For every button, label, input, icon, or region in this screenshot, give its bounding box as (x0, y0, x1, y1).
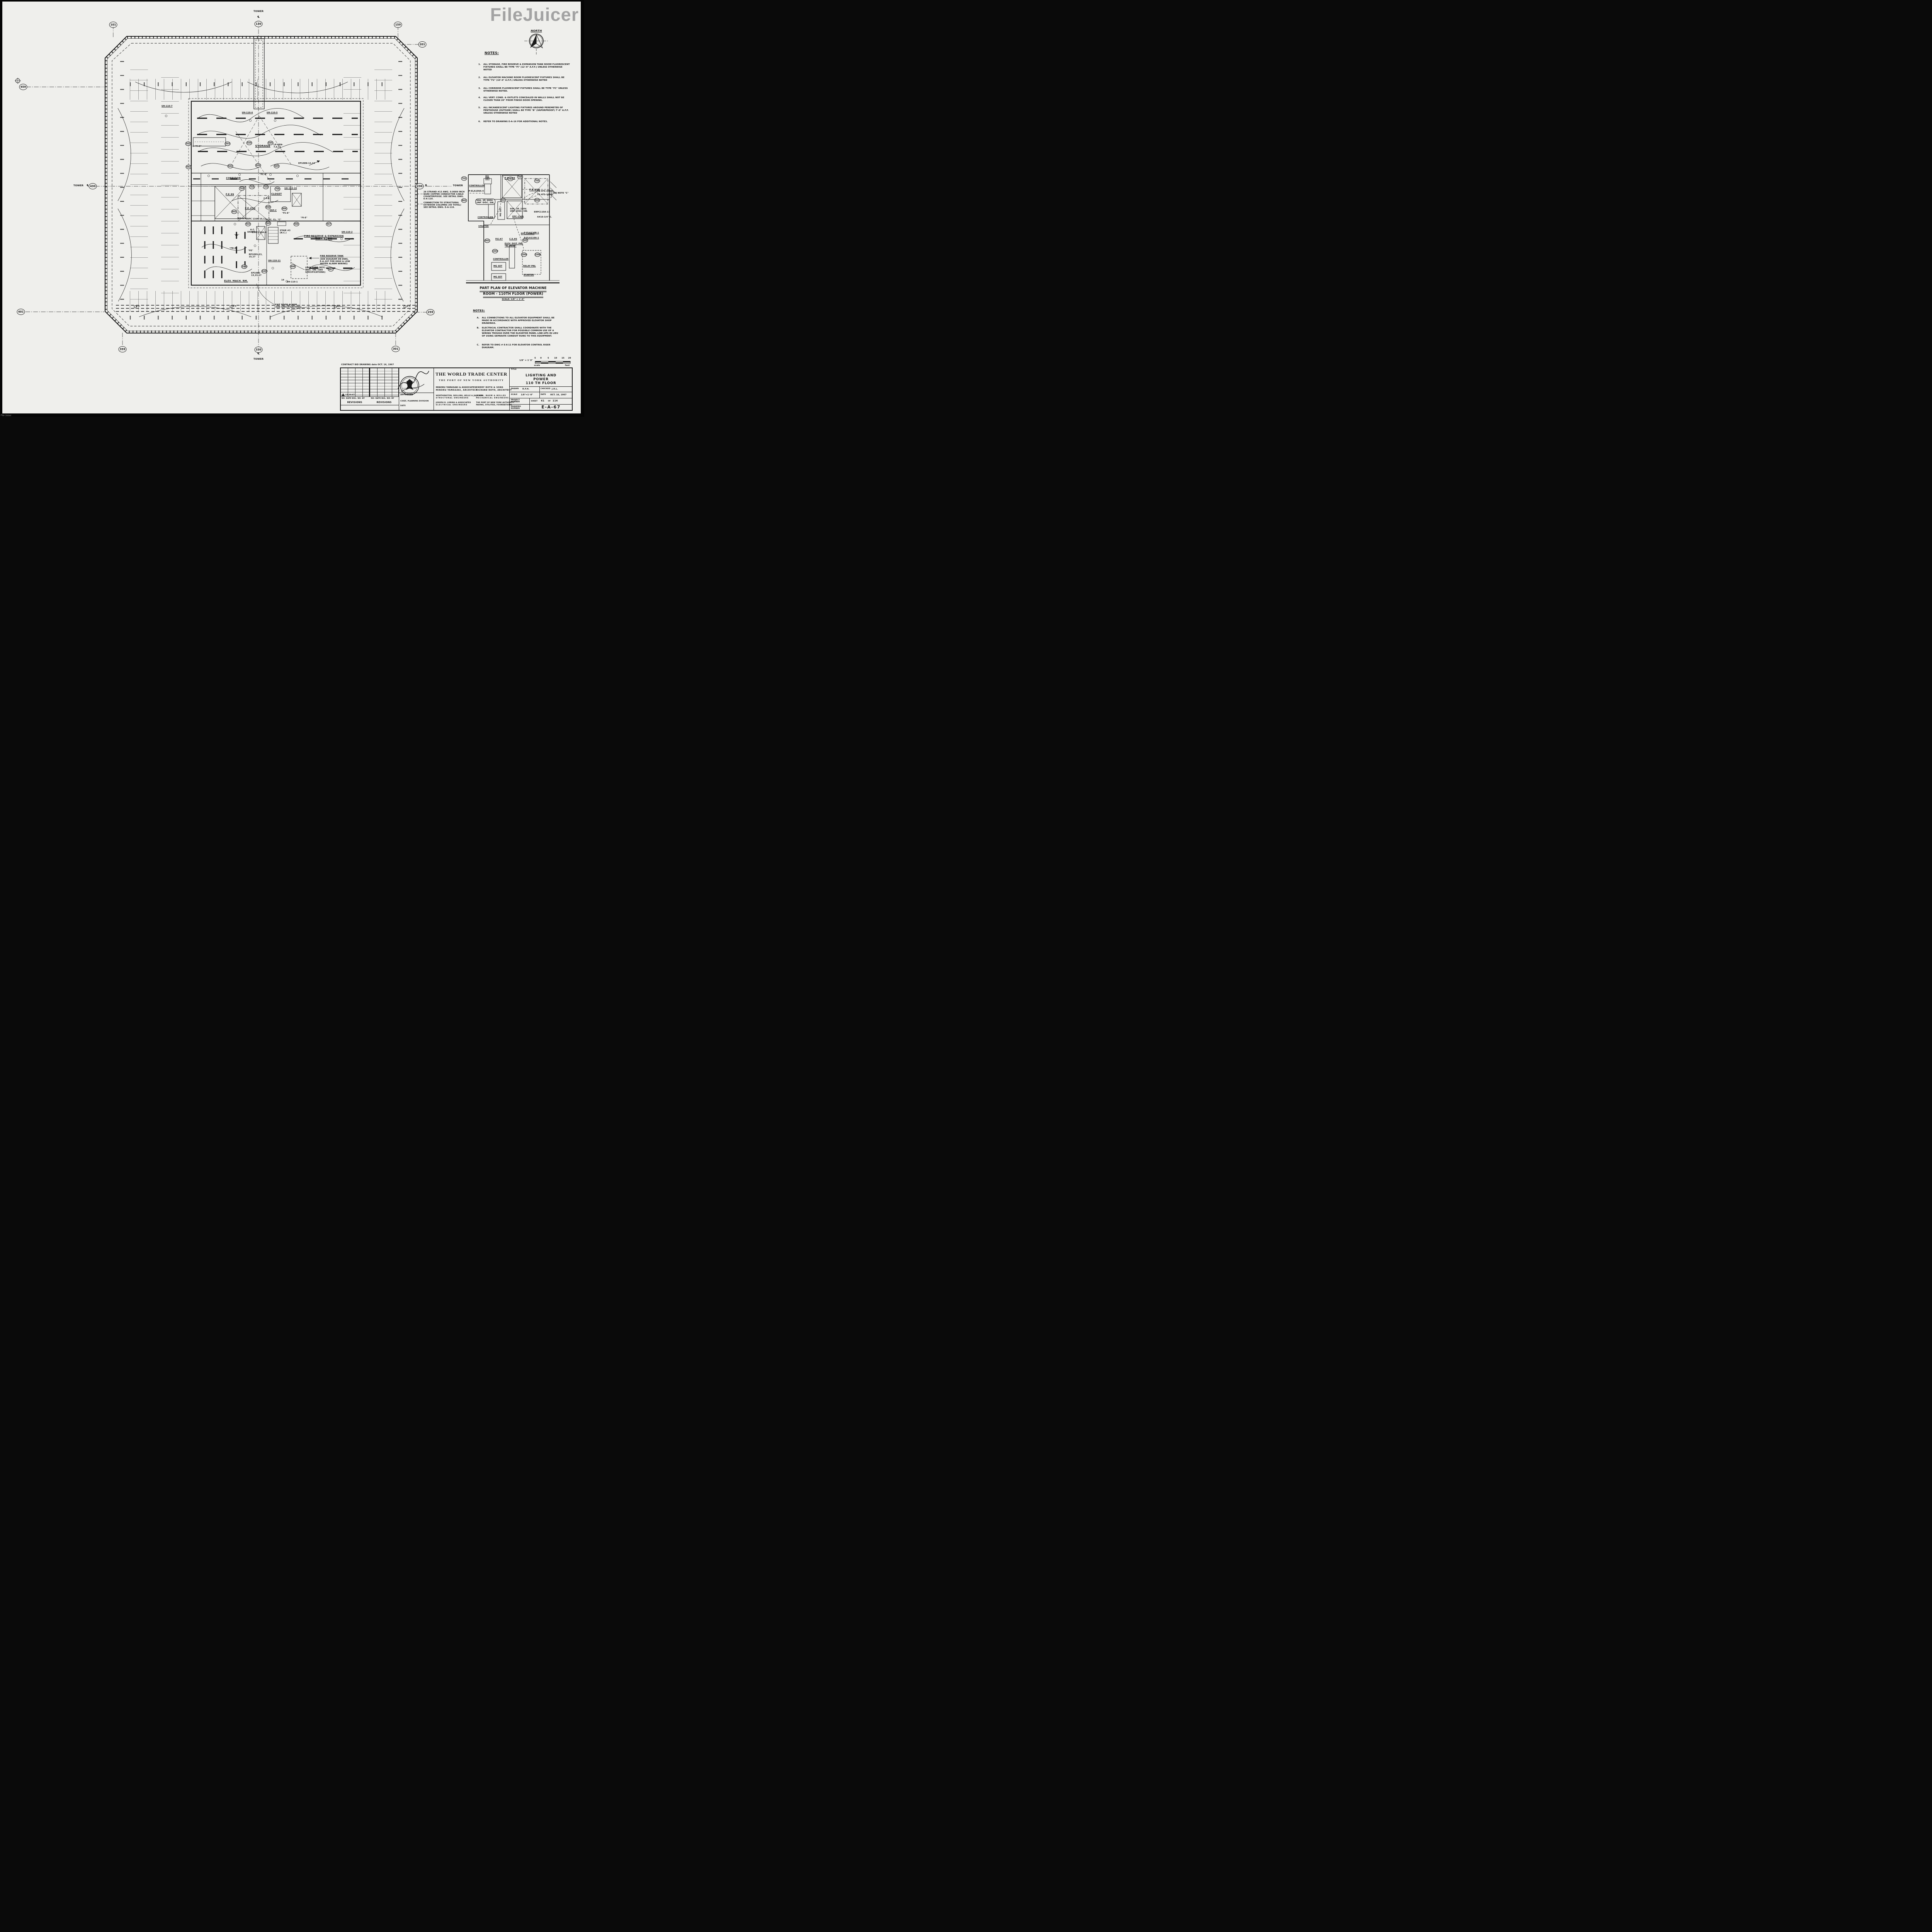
title-label: TITLE (511, 369, 517, 371)
column-bubble-301: 301 (392, 346, 400, 352)
column-bubble-259: 259 (427, 309, 435, 315)
note-item-4: 4. ALL VERT. COND. & OUTLETS CONCEALED I… (478, 97, 570, 102)
tag-ep108s: EP108S- 13,15,17 (251, 272, 262, 277)
ref-bubble-803: 803 (231, 210, 237, 214)
note-item-6: 6. REFER TO DRAWING E-A-16 FOR ADDITIONA… (478, 121, 570, 123)
note-text: ALL CONNECTIONS TO ALL ELEVATOR EQUIPMEN… (482, 317, 562, 325)
firm-loring: JOSEPH R. LORING & ASSOCIATES (436, 402, 471, 404)
room-label-fe50: F.E.#50 (245, 207, 255, 210)
tag-uh-110-5: UH-110-5 (267, 112, 278, 114)
revision-bottom-rule (340, 405, 399, 405)
contract-bid-note: CONTRACT BID DRAWING date OCT. 16, 1967 (341, 364, 394, 366)
revision-mark-date: 12·18·67 (345, 394, 355, 396)
pp-see-note-c: SEE NOTE "C" (553, 192, 568, 194)
firm-roth-role: RICHARD ROTH, ARCHITECT (476, 389, 512, 391)
pp-p-ela110b-1: P-ELA110B-1 (524, 232, 539, 234)
plan-linework (0, 0, 584, 417)
tag-uh-110-2: UH-110-2 (342, 231, 353, 233)
room-label-fire-reserve-tank-room: FIRE RESERVE & EXPANSION TANK ROOM (304, 235, 344, 240)
firm-yamasaki-role: MINORU YAMASAKI, ARCHITECT (436, 389, 478, 391)
tag-erp-c: ERP-C (270, 209, 277, 212)
scalebar-tick-5: 5 (548, 357, 549, 359)
pp-bubble-703: 703 (508, 177, 514, 181)
drawn-value: R.F.H. (522, 388, 529, 390)
revisions-label-right: REVISIONS (376, 401, 391, 404)
room-label-storage: STORAGE (255, 145, 270, 148)
tb-row-rule-2 (509, 392, 573, 392)
pp-pe7: P.E.#7 (495, 238, 503, 240)
note-text: REFER TO DRAWING E-A-16 FOR ADDITIONAL N… (483, 121, 548, 123)
note-number: 5. (478, 107, 482, 115)
pp-starter: STARTER (478, 225, 489, 228)
note-text: ALL INCANDESCENT LIGHTING FIXTURES AROUN… (483, 107, 570, 115)
ref-bubble-1003: 1003 (241, 265, 247, 269)
revisions-label-left: REVISIONS (347, 401, 362, 404)
north-arrow-icon (524, 34, 549, 56)
callout-lock-type-disc-sw: LOCK TYPE (KEY) DISC. SW. (SEE SPECIFICA… (305, 267, 325, 274)
scale-bar (535, 361, 570, 364)
note-number: 2. (478, 77, 482, 82)
pp-note-b: B. ELECTRICAL CONTRACTOR SHALL COORDINAT… (477, 327, 562, 338)
part-plan-title-line1: PART PLAN OF ELEVATOR MACHINE (480, 287, 546, 292)
column-bubble-201: 201 (418, 41, 427, 48)
pp-bubble-802: 802 (461, 199, 467, 203)
ref-bubble-504: 504 (247, 141, 252, 145)
note-text: REFER TO DWG # E-X-11 FOR ELEVATOR CONTR… (482, 344, 562, 349)
note-text: ELECTRICAL CONTRACTOR SHALL COORDINATE W… (482, 327, 562, 338)
scanned-blueprint-page: FileJuicer File Juicer 101 TOWER ℄ 130 1… (0, 0, 584, 417)
checked-label: CHECKED (541, 388, 550, 390)
ref-bubble-606: 606 (290, 265, 296, 269)
tag-erpc-110a-9: ERPC110A-9 (252, 231, 266, 234)
note-number: 6. (478, 121, 482, 123)
ref-bubble-703: 703 (239, 187, 245, 191)
column-bubble-101: 101 (109, 22, 117, 28)
scalebar-ratio: 1/8" = 1' 0" (519, 359, 533, 362)
column-bubble-401: 401 (17, 309, 25, 315)
tag-erpc-110a-10-12: ERPC 110A-10,12 (246, 218, 266, 220)
note-item-5: 5. ALL INCANDESCENT LIGHTING FIXTURES AR… (478, 107, 570, 115)
tower-tag-left: TOWER (73, 184, 83, 187)
tag-fc-e-1: "FC-E" (260, 173, 267, 176)
tower-tag-bottom: TOWER (253, 358, 264, 361)
date-value: OCT. 16, 1967 (550, 394, 566, 396)
tb-cell-div-3 (529, 398, 530, 404)
pp-conduit-4no10: 4#10-3/4" C. (537, 216, 552, 218)
pp-note-a: A. ALL CONNECTIONS TO ALL ELEVATOR EQUIP… (477, 317, 562, 325)
project-number-label: PROJECT NUMBER (511, 399, 520, 403)
checked-value: J.R.L. (552, 388, 558, 390)
column-bubble-459: 459 (19, 84, 27, 90)
note-number: 4. (478, 97, 482, 102)
drawing-number-label: DRAWING NUMBER (511, 406, 521, 410)
registration-mark (15, 78, 21, 84)
filejuicer-watermark: FileJuicer (490, 4, 579, 25)
tag-vt-1: V.T. (136, 305, 140, 308)
note-item-1: 1. ALL STORAGE, FIRE RESERVE & EXPANSION… (478, 63, 570, 71)
note-text: ALL STORAGE, FIRE RESERVE & EXPANSION TA… (483, 63, 570, 71)
pp-bubble-1003: 1003 (492, 249, 498, 253)
revision-header-right: NO. DATE BUL. NO. BY (371, 398, 394, 400)
pp-bubble-704: 704 (517, 175, 523, 179)
column-bubble-159: 159 (394, 22, 402, 28)
seal-text: LICENSED PROFESSIONAL ENGINEER (402, 381, 417, 385)
tb-divider-2 (434, 367, 434, 411)
scale-label: SCALE (511, 394, 517, 396)
tag-fd-e-2: "FD-E" (230, 247, 237, 250)
firm-ponya: THE PORT OF NEW YORK AUTHORITY (476, 402, 514, 404)
tag-fi-e: "FI-E" (301, 217, 307, 219)
tag-uh-110-1: UH-110-1 (287, 281, 298, 283)
part-plan-notes-title: NOTES: (473, 309, 485, 312)
tower-tag-top: TOWER (253, 10, 264, 13)
ref-bubble-502: 502 (185, 142, 191, 146)
callout-exterior-columns: CONNECTION TO STRUCTURAL EXTERIOR COLUMN… (423, 202, 467, 209)
firm-jaros: JAROS, BAUM & BOLLES (476, 395, 506, 397)
note-item-2: 2. ALL ELEVATOR MACHINE ROOM FLUORESCENT… (478, 77, 570, 82)
scalebar-tick-10: 10 (554, 357, 557, 359)
tag-vt-2: V.T. (233, 305, 237, 308)
sheet-label: SHEET (531, 400, 537, 402)
note-text: ALL CORRIDOR FLUORESCENT FIXTURES SHALL … (483, 87, 570, 93)
tb-cell-div-1 (539, 386, 540, 392)
note-number: 3. (478, 87, 482, 93)
pp-controller-2: CONTROLLER (478, 216, 493, 219)
centerline-symbol-top: ℄ (257, 15, 260, 19)
column-bubble-130: 130 (255, 21, 263, 27)
ref-bubble-804: 804 (265, 205, 271, 209)
firm-roth: EMERY ROTH & SONS (476, 386, 503, 389)
note-number: B. (477, 327, 480, 338)
tb-cell-div-4 (529, 404, 530, 411)
ref-bubble-706: 706 (275, 187, 281, 191)
centerline-symbol-right: ℄ (425, 184, 428, 187)
tag-uh-110-10: UH-110-10 (284, 187, 297, 190)
filejuicer-corner-watermark: File Juicer (1, 415, 11, 417)
revision-header-left: NO. DATE BUL. NO. BY (342, 398, 365, 400)
ref-bubble-503: 503 (225, 142, 231, 146)
room-label-closet: CLOSET (271, 193, 282, 196)
scalebar-tick-0: 0 (540, 357, 542, 359)
tower-tag-right: TOWER (453, 184, 463, 187)
ref-bubble-903: 903 (245, 222, 251, 226)
tag-fc-e-2: "FC-E" (282, 212, 289, 214)
approved-date-label: DATE (400, 405, 406, 407)
part-plan-title-line2: ROOM - 110TH FLOOR (POWER) (483, 293, 543, 298)
ref-bubble-604: 604 (255, 163, 261, 168)
tag-14: 14 (281, 279, 284, 281)
pp-epc-110a: EPC-110A (512, 216, 524, 218)
ref-bubble-1005: 1005 (262, 269, 267, 274)
chief-planning-division: CHIEF, PLANNING DIVISION (400, 400, 429, 402)
pp-bubble-705: 705 (534, 179, 540, 183)
note-number: C. (477, 344, 480, 349)
north-label: NORTH (531, 29, 542, 32)
ref-bubble-906: 906 (294, 222, 299, 226)
scalebar-tick-5l: 5 (534, 357, 536, 359)
pp-bubble-804: 804 (534, 198, 540, 202)
tag-lp-gen: LP-GEN- 7,9,11 (274, 144, 283, 148)
pp-bubble-1004: 1004 (521, 253, 527, 257)
pp-mg-set-2: MG SET (493, 265, 502, 267)
revision-grid-left (340, 367, 369, 397)
scale-value: 1/8"=1'-0" (521, 394, 533, 396)
project-title: THE WORLD TRADE CENTER (435, 372, 507, 377)
drawn-label: DRAWN (511, 388, 519, 390)
firm-worthington-role: STRUCTURAL ENGINEERS (436, 397, 469, 399)
pp-bubble-905: 905 (522, 238, 528, 243)
scalebar-tick-20: 20 (568, 357, 571, 359)
pp-bubble-803: 803 (500, 198, 506, 202)
room-label-fe99: F.E.99 (226, 193, 234, 196)
ref-bubble-705: 705 (263, 185, 269, 189)
centerline-symbol-bottom: ℄ (257, 352, 260, 355)
note-number: 1. (478, 63, 482, 71)
ref-bubble-505: 505 (268, 141, 274, 145)
revision-delta-icon (342, 393, 345, 396)
perimeter-fixtures (122, 61, 400, 318)
note-item-3: 3. ALL CORRIDOR FLUORESCENT FIXTURES SHA… (478, 87, 570, 93)
notes-title: NOTES: (485, 52, 499, 56)
firm-ponya-role: PAVING, UTILITIES, FOUNDATIONS (476, 404, 512, 406)
tag-fd-e-1: "FD-E" (237, 218, 245, 220)
pp-bubble-702: 702 (461, 177, 467, 181)
tag-vt-3: V.T. (337, 305, 341, 308)
ref-bubble-603: 603 (228, 164, 233, 168)
part-plan-scale: SCALE: 1/8" = 1'-0" (502, 298, 525, 301)
tb-cell-div-2 (539, 392, 540, 398)
date-label: DATE (541, 394, 546, 396)
tag-uh-110-7: UH-110-7 (162, 105, 173, 107)
pp-starter-2: STARTER (524, 274, 534, 276)
ref-bubble-905: 905 (265, 221, 271, 226)
scalebar-unit-scale: scale (534, 364, 540, 367)
tag-2-fi-e: 2-"FI-E" (192, 145, 202, 148)
room-label-elev-mach-rm: ELEV. MACH. RM. (224, 280, 248, 282)
pp-erpc110a-13: ERPC110A-13 (534, 211, 550, 213)
note-text: ALL ELEVATOR MACHINE ROOM FLUORESCENT FI… (483, 77, 570, 82)
tag-cpb: C.P.B. (264, 197, 270, 200)
room-label-elec-closet: ELEC. CL. "C" (266, 219, 281, 221)
pp-to-ats-108sl: TO ATS-108SL (537, 194, 553, 196)
column-bubble-230: 230 (416, 183, 424, 189)
tag-fe-2: "FE" (248, 250, 253, 252)
tb-row-rule-3 (509, 398, 573, 398)
firm-jaros-role: MECHANICAL ENGINEERS (476, 397, 509, 399)
callout-fire-reserve-tank-body: (SEE DIAGRAM ON DWG. E-A-107 FOR HIGH & … (320, 258, 350, 265)
column-bubble-359: 359 (119, 346, 127, 352)
sheet-total: 114 (553, 400, 558, 402)
drawing-number: E-A-67 (541, 405, 560, 410)
pp-mg-set-vertical: MG SET. (500, 207, 502, 216)
callout-counterpoise: 28 STRAND #13 AWG. 0.0689 INCH BARE COPP… (423, 191, 467, 200)
pp-bubble-1009: 1009 (535, 253, 541, 257)
project-authority: THE PORT OF NEW YORK AUTHORITY (439, 379, 504, 382)
note-text: ALL VERT. COND. & OUTLETS CONCEALED IN W… (483, 97, 570, 102)
tag-ep108n: EP108N-12,14 (298, 162, 315, 165)
pp-disc-sw-230v: 60A, 3P, 230V. UNF. DISC. SW. (510, 208, 528, 213)
revision-grid-right (369, 367, 399, 397)
tag-fe-1: "FE" (234, 234, 239, 236)
tag-uh-110-11: UH-110-11 (268, 260, 281, 262)
tb-row-rule-1 (509, 386, 573, 387)
pp-bubble-903: 903 (485, 239, 490, 243)
callout-exit-door-alarm: EXIT DOOR ALARM (SEE SPECIFICATIONS) (275, 304, 301, 308)
pp-controller: CONTROLLER (469, 185, 485, 187)
tag-vt-4: V.T. (406, 305, 411, 308)
tag-uh-110-6: UH-110-6 (242, 112, 253, 114)
tag-rp109s: RP109S-13, 15,17 (249, 253, 262, 258)
pp-elev-dist-pnl: ELEV. DIST. PNL "EL-A110" (505, 243, 523, 247)
ref-bubble-605: 605 (274, 164, 280, 168)
conduit-runs (118, 82, 404, 317)
sheet-title: LIGHTING AND POWER 110 TH FLOOR (519, 374, 563, 386)
room-label-corridor: CORRIDOR (226, 177, 241, 180)
pp-to-ats-108nl: TO ATS-108NL (537, 190, 554, 192)
tb-approved-rule (399, 393, 434, 393)
ref-bubble-704: 704 (249, 185, 255, 189)
ref-bubble-806: 806 (282, 207, 287, 211)
tb-divider-1 (399, 367, 399, 411)
tb-row-rule-4 (509, 404, 573, 405)
scalebar-unit-feet: feet (565, 364, 570, 367)
sheet-number: 61 (541, 400, 544, 402)
pp-disc-sw-600v: 60A, 3P, 600V. UNF. DISC. SW. (475, 199, 495, 205)
seal-state-text: STATE OF NEW YORK (403, 388, 417, 389)
ref-bubble-907: 907 (326, 222, 332, 226)
sheet-of-label: OF (548, 400, 551, 402)
firm-loring-role: ELECTRICAL ENGINEERS (436, 404, 468, 406)
pp-mg-set-3: MG SET (493, 276, 502, 278)
room-label-stair3: STAIR #3 (N.C.) (280, 230, 291, 234)
pp-ce6: C.E.#6 (509, 238, 517, 240)
ref-bubble-602: 602 (186, 165, 192, 169)
callout-fire-reserve-tank-title: FIRE RESERVE TANK (320, 255, 344, 257)
note-number: A. (477, 317, 480, 325)
pp-p-ela109a-4: P-ELA109A-4 (469, 190, 484, 192)
firm-yamasaki: MINORU YAMASAKI & ASSOCIATES (436, 386, 476, 389)
pp-note-c: C. REFER TO DWG # E-X-11 FOR ELEVATOR CO… (477, 344, 562, 349)
scalebar-tick-15: 15 (561, 357, 565, 359)
approved-label: APPROVED (400, 394, 413, 396)
column-bubble-430: 430 (89, 183, 97, 189)
pp-mg-set: MG SET (485, 175, 490, 180)
pp-controller-3: CONTROLLER (493, 258, 509, 260)
pp-relay-pnl: RELAY PNL (523, 265, 536, 267)
ref-bubble-607: 607 (328, 267, 334, 272)
